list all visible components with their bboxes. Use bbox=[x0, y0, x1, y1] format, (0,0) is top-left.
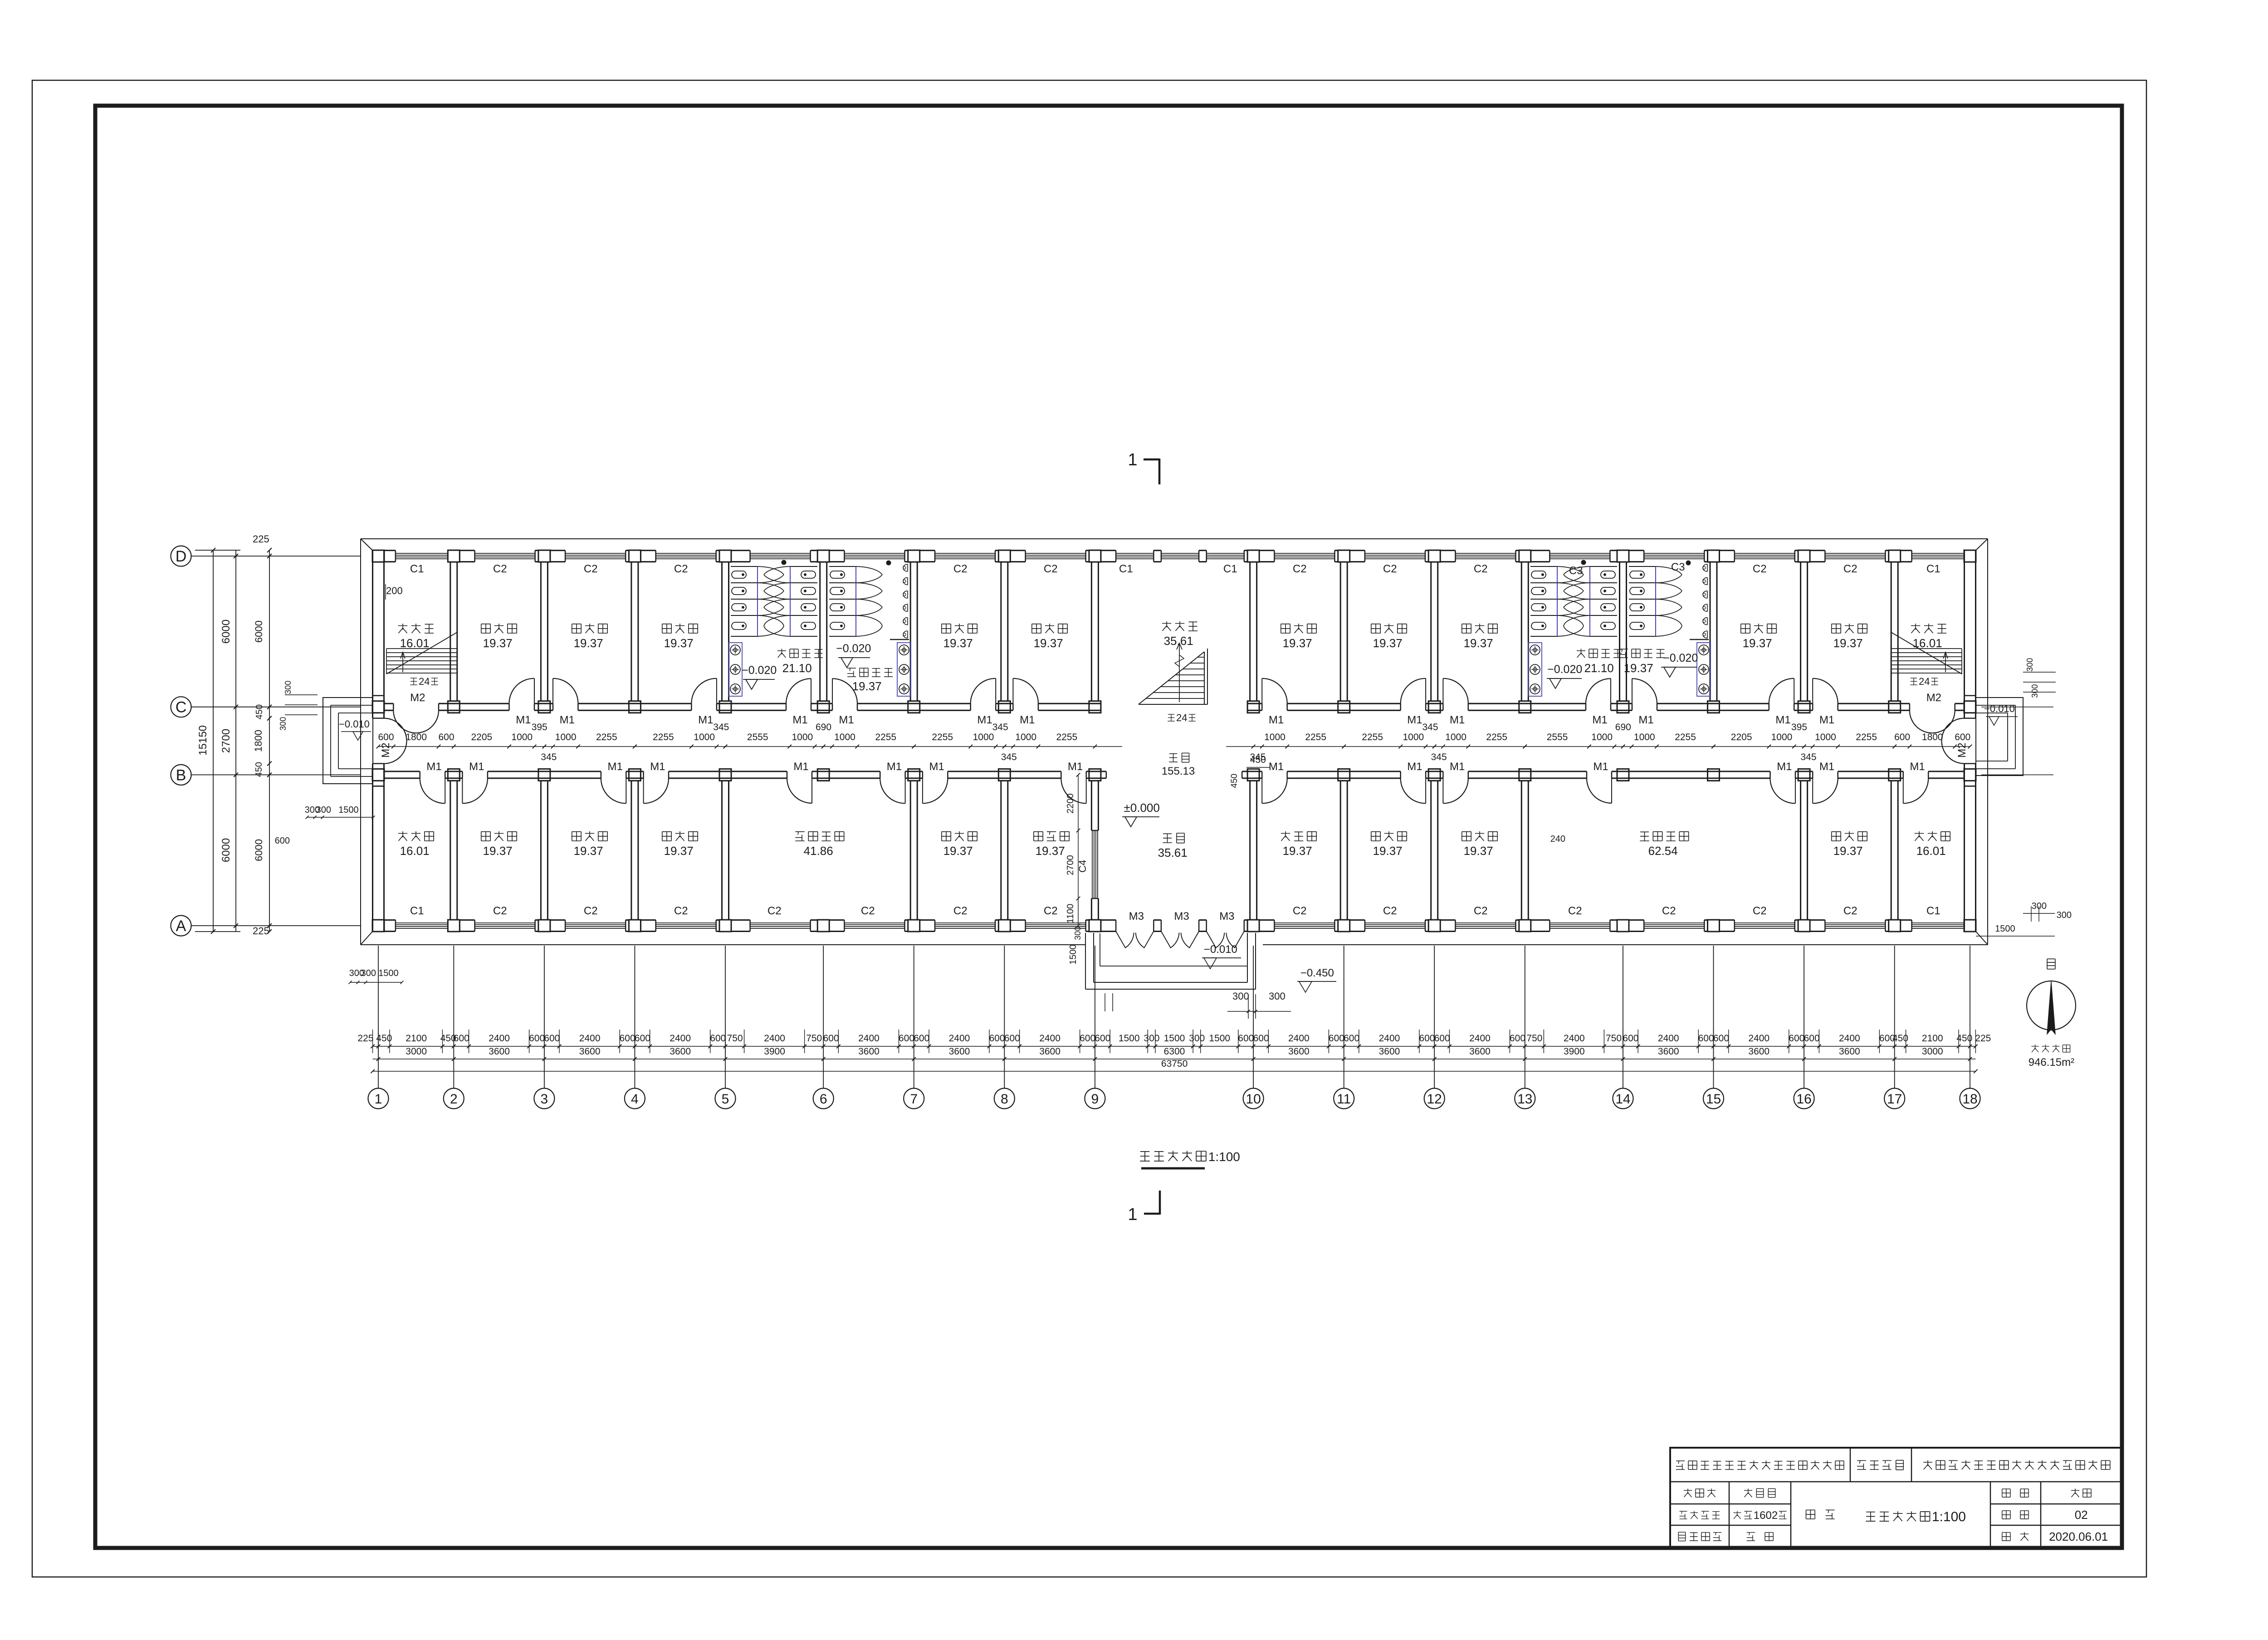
svg-text:M1: M1 bbox=[560, 714, 575, 726]
svg-text:1800: 1800 bbox=[406, 732, 427, 742]
svg-text:1000: 1000 bbox=[511, 732, 533, 742]
svg-text:C3: C3 bbox=[1569, 565, 1583, 577]
svg-text:300: 300 bbox=[316, 805, 331, 815]
svg-text:M1: M1 bbox=[887, 761, 902, 773]
svg-text:C2: C2 bbox=[1753, 905, 1767, 917]
svg-text:3600: 3600 bbox=[949, 1046, 970, 1057]
svg-text:600: 600 bbox=[914, 1033, 929, 1044]
svg-text:41.86: 41.86 bbox=[804, 844, 833, 858]
svg-text:11: 11 bbox=[1337, 1092, 1351, 1107]
svg-text:C2: C2 bbox=[1753, 563, 1767, 575]
svg-text:345: 345 bbox=[992, 722, 1008, 732]
svg-text:C2: C2 bbox=[767, 905, 782, 917]
svg-text:C1: C1 bbox=[410, 563, 424, 575]
svg-text:600: 600 bbox=[378, 732, 394, 742]
svg-text:2400: 2400 bbox=[764, 1033, 785, 1044]
svg-text:2255: 2255 bbox=[1362, 732, 1383, 742]
svg-text:3600: 3600 bbox=[1748, 1046, 1769, 1057]
svg-text:300: 300 bbox=[1269, 991, 1286, 1002]
svg-text:C2: C2 bbox=[1474, 905, 1488, 917]
svg-text:600: 600 bbox=[1510, 1033, 1525, 1044]
svg-text:450: 450 bbox=[254, 762, 264, 777]
svg-text:600: 600 bbox=[1804, 1033, 1820, 1044]
svg-text:6: 6 bbox=[820, 1092, 827, 1107]
svg-text:1100: 1100 bbox=[1066, 904, 1075, 923]
svg-text:300: 300 bbox=[2030, 684, 2039, 698]
svg-text:1000: 1000 bbox=[555, 732, 577, 742]
svg-text:6300: 6300 bbox=[1164, 1046, 1185, 1057]
svg-text:345: 345 bbox=[1422, 722, 1438, 732]
svg-text:300: 300 bbox=[1189, 1033, 1205, 1044]
svg-text:M1: M1 bbox=[839, 714, 854, 726]
svg-text:C2: C2 bbox=[674, 905, 688, 917]
svg-text:1000: 1000 bbox=[1771, 732, 1793, 742]
svg-text:1:100: 1:100 bbox=[1208, 1150, 1240, 1164]
svg-text:2255: 2255 bbox=[875, 732, 896, 742]
svg-text:C1: C1 bbox=[1926, 563, 1941, 575]
svg-text:C2: C2 bbox=[1662, 905, 1676, 917]
svg-text:300: 300 bbox=[2057, 910, 2072, 920]
svg-text:A: A bbox=[176, 918, 186, 935]
svg-text:−0.020: −0.020 bbox=[742, 664, 777, 677]
svg-text:1000: 1000 bbox=[1634, 732, 1655, 742]
svg-text:16.01: 16.01 bbox=[400, 636, 430, 650]
svg-text:17: 17 bbox=[1887, 1092, 1902, 1107]
svg-text:345: 345 bbox=[1001, 752, 1017, 762]
svg-text:2255: 2255 bbox=[1486, 732, 1507, 742]
svg-text:M1: M1 bbox=[977, 714, 992, 726]
svg-text:345: 345 bbox=[1431, 752, 1447, 762]
svg-text:19.37: 19.37 bbox=[1464, 844, 1493, 858]
svg-text:19.37: 19.37 bbox=[1833, 636, 1863, 650]
svg-text:600: 600 bbox=[1419, 1033, 1435, 1044]
svg-text:946.15m²: 946.15m² bbox=[2028, 1056, 2074, 1069]
svg-text:7: 7 bbox=[910, 1092, 918, 1107]
svg-text:6000: 6000 bbox=[220, 620, 232, 644]
svg-text:1500: 1500 bbox=[1995, 924, 2015, 934]
svg-text:C2: C2 bbox=[1383, 905, 1397, 917]
svg-text:600: 600 bbox=[439, 732, 455, 742]
svg-text:2400: 2400 bbox=[1748, 1033, 1769, 1044]
svg-text:3600: 3600 bbox=[1379, 1046, 1400, 1057]
svg-text:B: B bbox=[176, 766, 186, 784]
svg-text:3600: 3600 bbox=[1658, 1046, 1679, 1057]
svg-text:62.54: 62.54 bbox=[1648, 844, 1678, 858]
svg-text:450: 450 bbox=[1956, 1033, 1972, 1044]
svg-text:600: 600 bbox=[899, 1033, 914, 1044]
svg-text:16.01: 16.01 bbox=[1916, 844, 1946, 858]
svg-text:1: 1 bbox=[1128, 1205, 1137, 1224]
svg-text:2400: 2400 bbox=[1658, 1033, 1679, 1044]
svg-text:3: 3 bbox=[541, 1092, 548, 1107]
svg-text:690: 690 bbox=[816, 722, 831, 732]
svg-text:600: 600 bbox=[1623, 1033, 1638, 1044]
svg-text:M1: M1 bbox=[1819, 761, 1834, 773]
svg-text:2400: 2400 bbox=[1288, 1033, 1310, 1044]
svg-text:21.10: 21.10 bbox=[782, 661, 812, 675]
svg-text:2200: 2200 bbox=[1066, 793, 1075, 814]
svg-text:600: 600 bbox=[1329, 1033, 1344, 1044]
svg-text:C2: C2 bbox=[1293, 905, 1307, 917]
svg-text:C2: C2 bbox=[1383, 563, 1397, 575]
svg-text:300: 300 bbox=[283, 681, 293, 694]
svg-text:2400: 2400 bbox=[489, 1033, 510, 1044]
svg-text:±0.000: ±0.000 bbox=[1124, 801, 1160, 815]
svg-text:M2: M2 bbox=[1956, 742, 1968, 757]
svg-text:395: 395 bbox=[1791, 722, 1807, 732]
svg-text:−0.450: −0.450 bbox=[1300, 967, 1334, 979]
svg-text:15: 15 bbox=[1706, 1092, 1721, 1107]
svg-text:16.01: 16.01 bbox=[1913, 636, 1942, 650]
svg-text:19.37: 19.37 bbox=[1373, 844, 1403, 858]
svg-text:D: D bbox=[176, 548, 187, 565]
svg-text:3900: 3900 bbox=[1564, 1046, 1585, 1057]
svg-text:2205: 2205 bbox=[471, 732, 493, 742]
svg-text:600: 600 bbox=[620, 1033, 635, 1044]
svg-text:24: 24 bbox=[1176, 712, 1187, 723]
svg-text:C2: C2 bbox=[584, 905, 598, 917]
svg-text:C1: C1 bbox=[410, 905, 424, 917]
svg-text:M1: M1 bbox=[1593, 761, 1608, 773]
svg-text:240: 240 bbox=[1550, 834, 1565, 844]
svg-text:M1: M1 bbox=[1910, 761, 1925, 773]
svg-text:C3: C3 bbox=[1671, 561, 1685, 573]
svg-text:1500: 1500 bbox=[1119, 1033, 1140, 1044]
svg-text:1500: 1500 bbox=[338, 805, 359, 815]
svg-text:300: 300 bbox=[361, 968, 376, 978]
svg-text:C2: C2 bbox=[861, 905, 875, 917]
svg-text:C2: C2 bbox=[953, 905, 968, 917]
svg-text:21.10: 21.10 bbox=[1584, 661, 1614, 675]
svg-text:19.37: 19.37 bbox=[1833, 844, 1863, 858]
svg-text:C2: C2 bbox=[674, 563, 688, 575]
svg-text:24: 24 bbox=[1919, 676, 1930, 687]
svg-text:C4: C4 bbox=[1077, 860, 1088, 873]
svg-text:300: 300 bbox=[2025, 658, 2034, 672]
svg-text:1500: 1500 bbox=[378, 968, 399, 978]
svg-text:M2: M2 bbox=[380, 742, 392, 757]
svg-text:M2: M2 bbox=[1926, 692, 1941, 704]
svg-text:19.37: 19.37 bbox=[574, 844, 603, 858]
svg-text:3600: 3600 bbox=[1039, 1046, 1061, 1057]
svg-text:1800: 1800 bbox=[1922, 732, 1943, 742]
svg-text:2400: 2400 bbox=[1379, 1033, 1400, 1044]
svg-text:2400: 2400 bbox=[1039, 1033, 1061, 1044]
svg-text:1602: 1602 bbox=[1754, 1509, 1778, 1522]
svg-text:1000: 1000 bbox=[1815, 732, 1836, 742]
svg-text:600: 600 bbox=[275, 836, 290, 846]
svg-text:1500: 1500 bbox=[1068, 944, 1078, 965]
svg-text:200: 200 bbox=[386, 585, 403, 596]
svg-text:155.13: 155.13 bbox=[1162, 765, 1195, 777]
svg-text:14: 14 bbox=[1615, 1092, 1630, 1107]
svg-text:1000: 1000 bbox=[973, 732, 994, 742]
svg-text:750: 750 bbox=[1606, 1033, 1622, 1044]
svg-text:600: 600 bbox=[544, 1033, 560, 1044]
svg-text:2: 2 bbox=[450, 1092, 458, 1107]
svg-text:3900: 3900 bbox=[764, 1046, 785, 1057]
svg-text:M1: M1 bbox=[608, 761, 623, 773]
svg-text:1500: 1500 bbox=[1209, 1033, 1230, 1044]
svg-text:750: 750 bbox=[727, 1033, 743, 1044]
svg-text:600: 600 bbox=[989, 1033, 1005, 1044]
svg-text:300: 300 bbox=[1073, 927, 1082, 940]
svg-text:1: 1 bbox=[375, 1092, 382, 1107]
svg-text:19.37: 19.37 bbox=[483, 844, 513, 858]
svg-text:19.37: 19.37 bbox=[1464, 636, 1493, 650]
svg-text:M1: M1 bbox=[929, 761, 944, 773]
svg-text:600: 600 bbox=[1253, 1033, 1269, 1044]
svg-text:16.01: 16.01 bbox=[400, 844, 430, 858]
svg-text:2400: 2400 bbox=[949, 1033, 970, 1044]
svg-text:3600: 3600 bbox=[1839, 1046, 1860, 1057]
svg-text:19.37: 19.37 bbox=[574, 636, 603, 650]
svg-text:C1: C1 bbox=[1119, 563, 1133, 575]
svg-text:24: 24 bbox=[419, 676, 430, 687]
svg-text:2400: 2400 bbox=[670, 1033, 691, 1044]
svg-text:2555: 2555 bbox=[747, 732, 768, 742]
svg-text:1000: 1000 bbox=[792, 732, 813, 742]
svg-text:600: 600 bbox=[1434, 1033, 1450, 1044]
svg-text:225: 225 bbox=[1975, 1033, 1991, 1044]
svg-text:3600: 3600 bbox=[489, 1046, 510, 1057]
svg-text:2400: 2400 bbox=[1564, 1033, 1585, 1044]
svg-text:15150: 15150 bbox=[197, 725, 209, 756]
svg-text:1500: 1500 bbox=[1164, 1033, 1185, 1044]
svg-text:9: 9 bbox=[1091, 1092, 1099, 1107]
svg-text:M1: M1 bbox=[426, 761, 441, 773]
svg-text:600: 600 bbox=[1095, 1033, 1110, 1044]
svg-text:3000: 3000 bbox=[406, 1046, 427, 1057]
svg-text:M1: M1 bbox=[792, 714, 807, 726]
svg-text:1000: 1000 bbox=[1591, 732, 1613, 742]
svg-text:2400: 2400 bbox=[1839, 1033, 1860, 1044]
svg-text:600: 600 bbox=[1080, 1033, 1095, 1044]
svg-text:M1: M1 bbox=[1775, 714, 1790, 726]
svg-text:M1: M1 bbox=[1777, 761, 1792, 773]
svg-text:450: 450 bbox=[376, 1033, 392, 1044]
svg-text:C2: C2 bbox=[953, 563, 968, 575]
svg-text:450: 450 bbox=[1892, 1033, 1908, 1044]
svg-text:−0.010: −0.010 bbox=[339, 718, 370, 730]
svg-text:19.37: 19.37 bbox=[943, 636, 973, 650]
svg-text:600: 600 bbox=[454, 1033, 469, 1044]
svg-text:2255: 2255 bbox=[932, 732, 953, 742]
svg-text:1800: 1800 bbox=[253, 730, 264, 752]
svg-text:2100: 2100 bbox=[1922, 1033, 1943, 1044]
svg-text:600: 600 bbox=[1004, 1033, 1020, 1044]
svg-text:M1: M1 bbox=[1407, 714, 1422, 726]
svg-text:02: 02 bbox=[2075, 1508, 2088, 1522]
svg-text:2255: 2255 bbox=[653, 732, 674, 742]
svg-text:2255: 2255 bbox=[1675, 732, 1696, 742]
svg-text:M1: M1 bbox=[1407, 761, 1422, 773]
svg-text:19.37: 19.37 bbox=[852, 679, 882, 693]
svg-text:225: 225 bbox=[357, 1033, 373, 1044]
svg-text:M1: M1 bbox=[1819, 714, 1834, 726]
svg-text:395: 395 bbox=[532, 722, 547, 732]
svg-text:3600: 3600 bbox=[579, 1046, 601, 1057]
svg-text:1000: 1000 bbox=[1445, 732, 1466, 742]
svg-text:3600: 3600 bbox=[670, 1046, 691, 1057]
svg-text:345: 345 bbox=[541, 752, 557, 762]
svg-text:10: 10 bbox=[1246, 1092, 1261, 1107]
svg-text:C2: C2 bbox=[1474, 563, 1488, 575]
svg-text:19.37: 19.37 bbox=[943, 844, 973, 858]
svg-text:C2: C2 bbox=[1044, 563, 1058, 575]
svg-text:600: 600 bbox=[1789, 1033, 1804, 1044]
svg-text:19.37: 19.37 bbox=[1283, 844, 1312, 858]
svg-text:19.37: 19.37 bbox=[1036, 844, 1065, 858]
svg-text:C2: C2 bbox=[1843, 905, 1857, 917]
svg-text:2555: 2555 bbox=[1547, 732, 1568, 742]
svg-text:750: 750 bbox=[1526, 1033, 1542, 1044]
svg-text:450: 450 bbox=[1250, 755, 1266, 765]
svg-text:600: 600 bbox=[529, 1033, 545, 1044]
svg-text:C2: C2 bbox=[1044, 905, 1058, 917]
svg-text:2020.06.01: 2020.06.01 bbox=[2049, 1530, 2108, 1543]
svg-text:M1: M1 bbox=[1592, 714, 1607, 726]
svg-text:63750: 63750 bbox=[1161, 1059, 1188, 1069]
svg-text:2400: 2400 bbox=[1469, 1033, 1491, 1044]
svg-text:225: 225 bbox=[253, 925, 269, 937]
svg-text:2255: 2255 bbox=[1305, 732, 1326, 742]
svg-text:M1: M1 bbox=[1269, 761, 1284, 773]
svg-text:600: 600 bbox=[1238, 1033, 1254, 1044]
svg-text:2400: 2400 bbox=[858, 1033, 880, 1044]
svg-text:2100: 2100 bbox=[406, 1033, 427, 1044]
svg-text:600: 600 bbox=[1698, 1033, 1714, 1044]
svg-text:6000: 6000 bbox=[253, 620, 264, 643]
svg-text:1000: 1000 bbox=[834, 732, 855, 742]
svg-text:2400: 2400 bbox=[579, 1033, 601, 1044]
svg-text:−0.020: −0.020 bbox=[836, 642, 871, 655]
svg-text:−0.020: −0.020 bbox=[1547, 663, 1582, 676]
svg-text:16: 16 bbox=[1796, 1092, 1811, 1107]
svg-text:19.37: 19.37 bbox=[483, 636, 513, 650]
svg-text:C2: C2 bbox=[1843, 563, 1857, 575]
svg-text:3000: 3000 bbox=[1922, 1046, 1943, 1057]
svg-text:19.37: 19.37 bbox=[664, 636, 694, 650]
svg-text:3600: 3600 bbox=[858, 1046, 880, 1057]
svg-text:C2: C2 bbox=[1568, 905, 1582, 917]
svg-text:35.61: 35.61 bbox=[1158, 846, 1188, 859]
svg-text:19.37: 19.37 bbox=[1034, 636, 1063, 650]
svg-text:450: 450 bbox=[1230, 774, 1239, 788]
svg-text:M3: M3 bbox=[1219, 910, 1234, 922]
svg-text:750: 750 bbox=[806, 1033, 822, 1044]
svg-text:600: 600 bbox=[823, 1033, 839, 1044]
svg-text:M1: M1 bbox=[650, 761, 665, 773]
svg-text:690: 690 bbox=[1615, 722, 1631, 732]
svg-text:1000: 1000 bbox=[1264, 732, 1286, 742]
svg-text:M1: M1 bbox=[1020, 714, 1035, 726]
svg-text:−0.010: −0.010 bbox=[1204, 943, 1237, 956]
svg-text:2205: 2205 bbox=[1731, 732, 1752, 742]
svg-text:19.37: 19.37 bbox=[664, 844, 694, 858]
svg-text:C: C bbox=[176, 699, 187, 716]
svg-text:1000: 1000 bbox=[1403, 732, 1424, 742]
svg-text:600: 600 bbox=[1894, 732, 1910, 742]
svg-text:3600: 3600 bbox=[1469, 1046, 1491, 1057]
svg-text:2700: 2700 bbox=[1066, 855, 1075, 875]
svg-text:M3: M3 bbox=[1174, 910, 1189, 922]
svg-text:1: 1 bbox=[1128, 450, 1137, 469]
svg-text:C2: C2 bbox=[1293, 563, 1307, 575]
svg-text:19.37: 19.37 bbox=[1743, 636, 1772, 650]
svg-text:M1: M1 bbox=[469, 761, 484, 773]
svg-text:450: 450 bbox=[254, 704, 264, 719]
svg-text:M1: M1 bbox=[793, 761, 808, 773]
svg-text:2700: 2700 bbox=[220, 729, 232, 753]
svg-text:345: 345 bbox=[1801, 752, 1817, 762]
svg-text:300: 300 bbox=[1232, 991, 1249, 1002]
svg-text:C2: C2 bbox=[493, 905, 507, 917]
svg-text:−0.020: −0.020 bbox=[1663, 652, 1698, 664]
svg-text:M1: M1 bbox=[1068, 761, 1083, 773]
svg-text:C2: C2 bbox=[584, 563, 598, 575]
svg-text:5: 5 bbox=[722, 1092, 729, 1107]
svg-text:8: 8 bbox=[1001, 1092, 1008, 1107]
svg-text:1000: 1000 bbox=[694, 732, 715, 742]
svg-text:600: 600 bbox=[1713, 1033, 1729, 1044]
svg-text:6000: 6000 bbox=[253, 839, 264, 861]
svg-text:C1: C1 bbox=[1926, 905, 1941, 917]
svg-text:M1: M1 bbox=[698, 714, 713, 726]
svg-text:2255: 2255 bbox=[1056, 732, 1078, 742]
svg-text:M1: M1 bbox=[1450, 714, 1465, 726]
svg-text:600: 600 bbox=[1955, 732, 1970, 742]
svg-text:1:100: 1:100 bbox=[1932, 1509, 1966, 1524]
svg-text:300: 300 bbox=[1144, 1033, 1159, 1044]
svg-text:225: 225 bbox=[253, 533, 269, 545]
svg-text:M1: M1 bbox=[1638, 714, 1653, 726]
svg-text:2255: 2255 bbox=[1856, 732, 1877, 742]
svg-text:−0.010: −0.010 bbox=[1984, 703, 2015, 714]
svg-text:600: 600 bbox=[635, 1033, 650, 1044]
svg-text:M3: M3 bbox=[1129, 910, 1144, 922]
svg-text:300: 300 bbox=[279, 717, 288, 731]
svg-text:600: 600 bbox=[1344, 1033, 1359, 1044]
svg-text:M2: M2 bbox=[410, 692, 425, 704]
svg-text:M1: M1 bbox=[1269, 714, 1284, 726]
svg-text:M1: M1 bbox=[516, 714, 531, 726]
svg-text:19.37: 19.37 bbox=[1283, 636, 1312, 650]
svg-text:13: 13 bbox=[1517, 1092, 1532, 1107]
svg-text:3600: 3600 bbox=[1288, 1046, 1310, 1057]
svg-text:C2: C2 bbox=[493, 563, 507, 575]
svg-text:12: 12 bbox=[1427, 1092, 1442, 1107]
svg-text:600: 600 bbox=[710, 1033, 726, 1044]
svg-text:M1: M1 bbox=[1450, 761, 1465, 773]
svg-text:345: 345 bbox=[713, 722, 729, 732]
svg-text:1000: 1000 bbox=[1015, 732, 1036, 742]
svg-text:35.61: 35.61 bbox=[1164, 634, 1193, 648]
svg-text:6000: 6000 bbox=[220, 838, 232, 862]
svg-text:19.37: 19.37 bbox=[1373, 636, 1403, 650]
svg-text:C1: C1 bbox=[1223, 563, 1237, 575]
svg-text:4: 4 bbox=[631, 1092, 639, 1107]
svg-text:18: 18 bbox=[1962, 1092, 1977, 1107]
svg-text:2255: 2255 bbox=[596, 732, 617, 742]
svg-text:19.37: 19.37 bbox=[1624, 661, 1653, 675]
